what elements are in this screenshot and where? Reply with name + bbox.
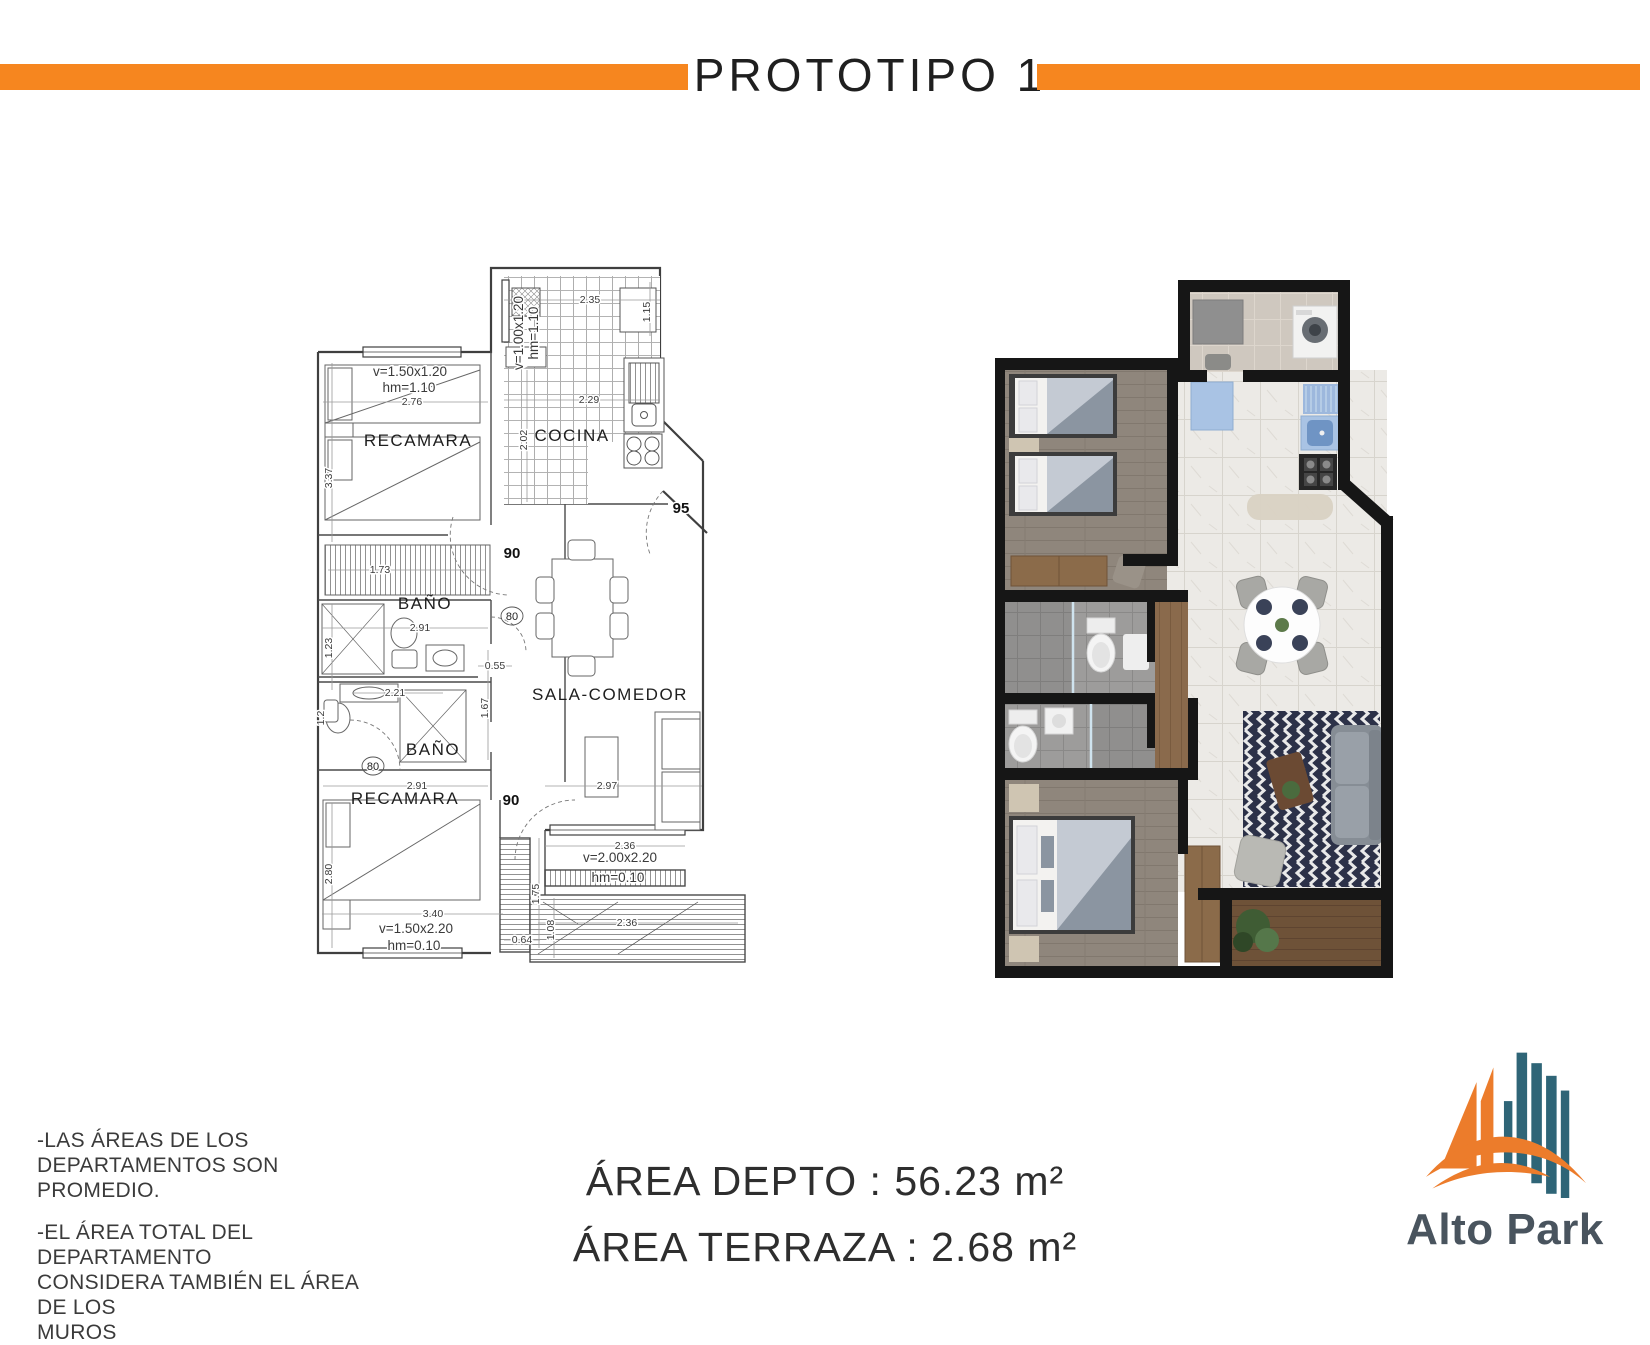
dim-236a: 2.36 [615,840,636,852]
window4-size: v=1.50x2.20 [379,921,453,936]
dim-175: 1.75 [530,884,542,905]
room-label-sala: SALA-COMEDOR [532,685,688,704]
header-accent-bar-left [0,64,688,90]
door-label-90b: 90 [503,792,520,809]
blue-cabinet [1191,382,1233,430]
area-terraza: ÁREA TERRAZA : 2.68 m² [540,1224,1110,1271]
dim-055: 0.55 [485,660,506,672]
living-room-items [1233,711,1383,888]
brand-logo: Alto Park [1385,1040,1625,1255]
door-label-90a: 90 [504,545,521,562]
double-bed [1009,816,1135,934]
dim-291a: 2.91 [410,622,431,634]
dim-340: 3.40 [423,908,444,920]
page-title: PROTOTIPO 1 [650,40,1090,110]
hallway-floor [1155,590,1188,780]
room-label-bano2: BAÑO [406,740,460,759]
room-label-recamara1: RECAMARA [364,431,472,450]
dim-064: 0.64 [512,934,533,946]
dim-173: 1.73 [370,564,391,576]
room-label-bano1: BAÑO [398,594,452,613]
nightstand-2 [1009,784,1039,812]
window3-height: hm=0.10 [592,870,645,885]
dim-291b: 2.91 [407,780,428,792]
note-line: MUROS [37,1320,377,1345]
kitchen-rug [1247,494,1333,520]
window2-height: hm=1.10 [526,307,541,360]
dim-108: 1.08 [545,920,557,941]
dim-221: 2.21 [385,687,406,699]
bath-mat [1123,634,1149,670]
header-accent-bar-right [1037,64,1640,90]
window1-height: hm=1.10 [383,380,436,395]
room-label-recamara2: RECAMARA [351,789,459,808]
single-bed-1 [1009,374,1117,438]
dim-12: 1.2 [315,711,327,726]
dining-set [1235,575,1329,676]
dim-276: 2.76 [402,396,423,408]
dim-123: 1.23 [323,638,335,659]
dim-297: 2.97 [597,780,618,792]
window2-size: v=1.00x1.20 [511,296,526,370]
dim-229: 2.29 [579,394,600,406]
stool [1205,354,1231,370]
area-depto: ÁREA DEPTO : 56.23 m² [540,1158,1110,1205]
dim-280: 2.80 [323,864,335,885]
window1-size: v=1.50x1.20 [373,364,447,379]
door-label-95: 95 [673,500,690,517]
bedroom2-furniture [323,800,480,929]
alto-park-logo-icon [1410,1040,1600,1198]
door-label-80b: 80 [367,761,379,773]
single-bed-2 [1009,452,1117,516]
window4-height: hm=0.10 [388,938,441,953]
dining-table [552,559,613,657]
note-line: -EL ÁREA TOTAL DEL DEPARTAMENTO [37,1220,377,1270]
nightstand-3 [1009,936,1039,962]
brand-name: Alto Park [1385,1205,1625,1255]
note-line: DEPARTAMENTOS SON PROMEDIO. [37,1153,377,1203]
dim-236b: 2.36 [617,917,638,929]
notes-block: -LAS ÁREAS DE LOS DEPARTAMENTOS SON PROM… [37,1128,377,1345]
technical-floorplan: 90 80 80 90 95 RECAMARA COCINA BAÑO BAÑO… [288,252,748,972]
dim-202: 2.02 [518,430,530,451]
door-label-80a: 80 [506,611,518,623]
note-line: CONSIDERA TAMBIÉN EL ÁREA DE LOS [37,1270,377,1320]
logo-buildings-teal [1504,1053,1569,1198]
dim-115: 1.15 [641,302,653,323]
table-plant [1275,618,1289,632]
nightstand [1009,438,1039,452]
armchair [1233,834,1288,889]
dim-167: 1.67 [479,698,491,719]
render-floorplan [995,268,1395,978]
dim-235: 2.35 [580,294,601,306]
room-label-cocina: COCINA [534,426,609,445]
areas-block: ÁREA DEPTO : 56.23 m² ÁREA TERRAZA : 2.6… [540,1158,1110,1290]
window3-size: v=2.00x2.20 [583,850,657,865]
note-line: -LAS ÁREAS DE LOS [37,1128,377,1153]
dim-337: 3.37 [323,468,335,489]
bathroom1-fixtures [322,604,464,674]
sofa-3d [1331,725,1383,845]
